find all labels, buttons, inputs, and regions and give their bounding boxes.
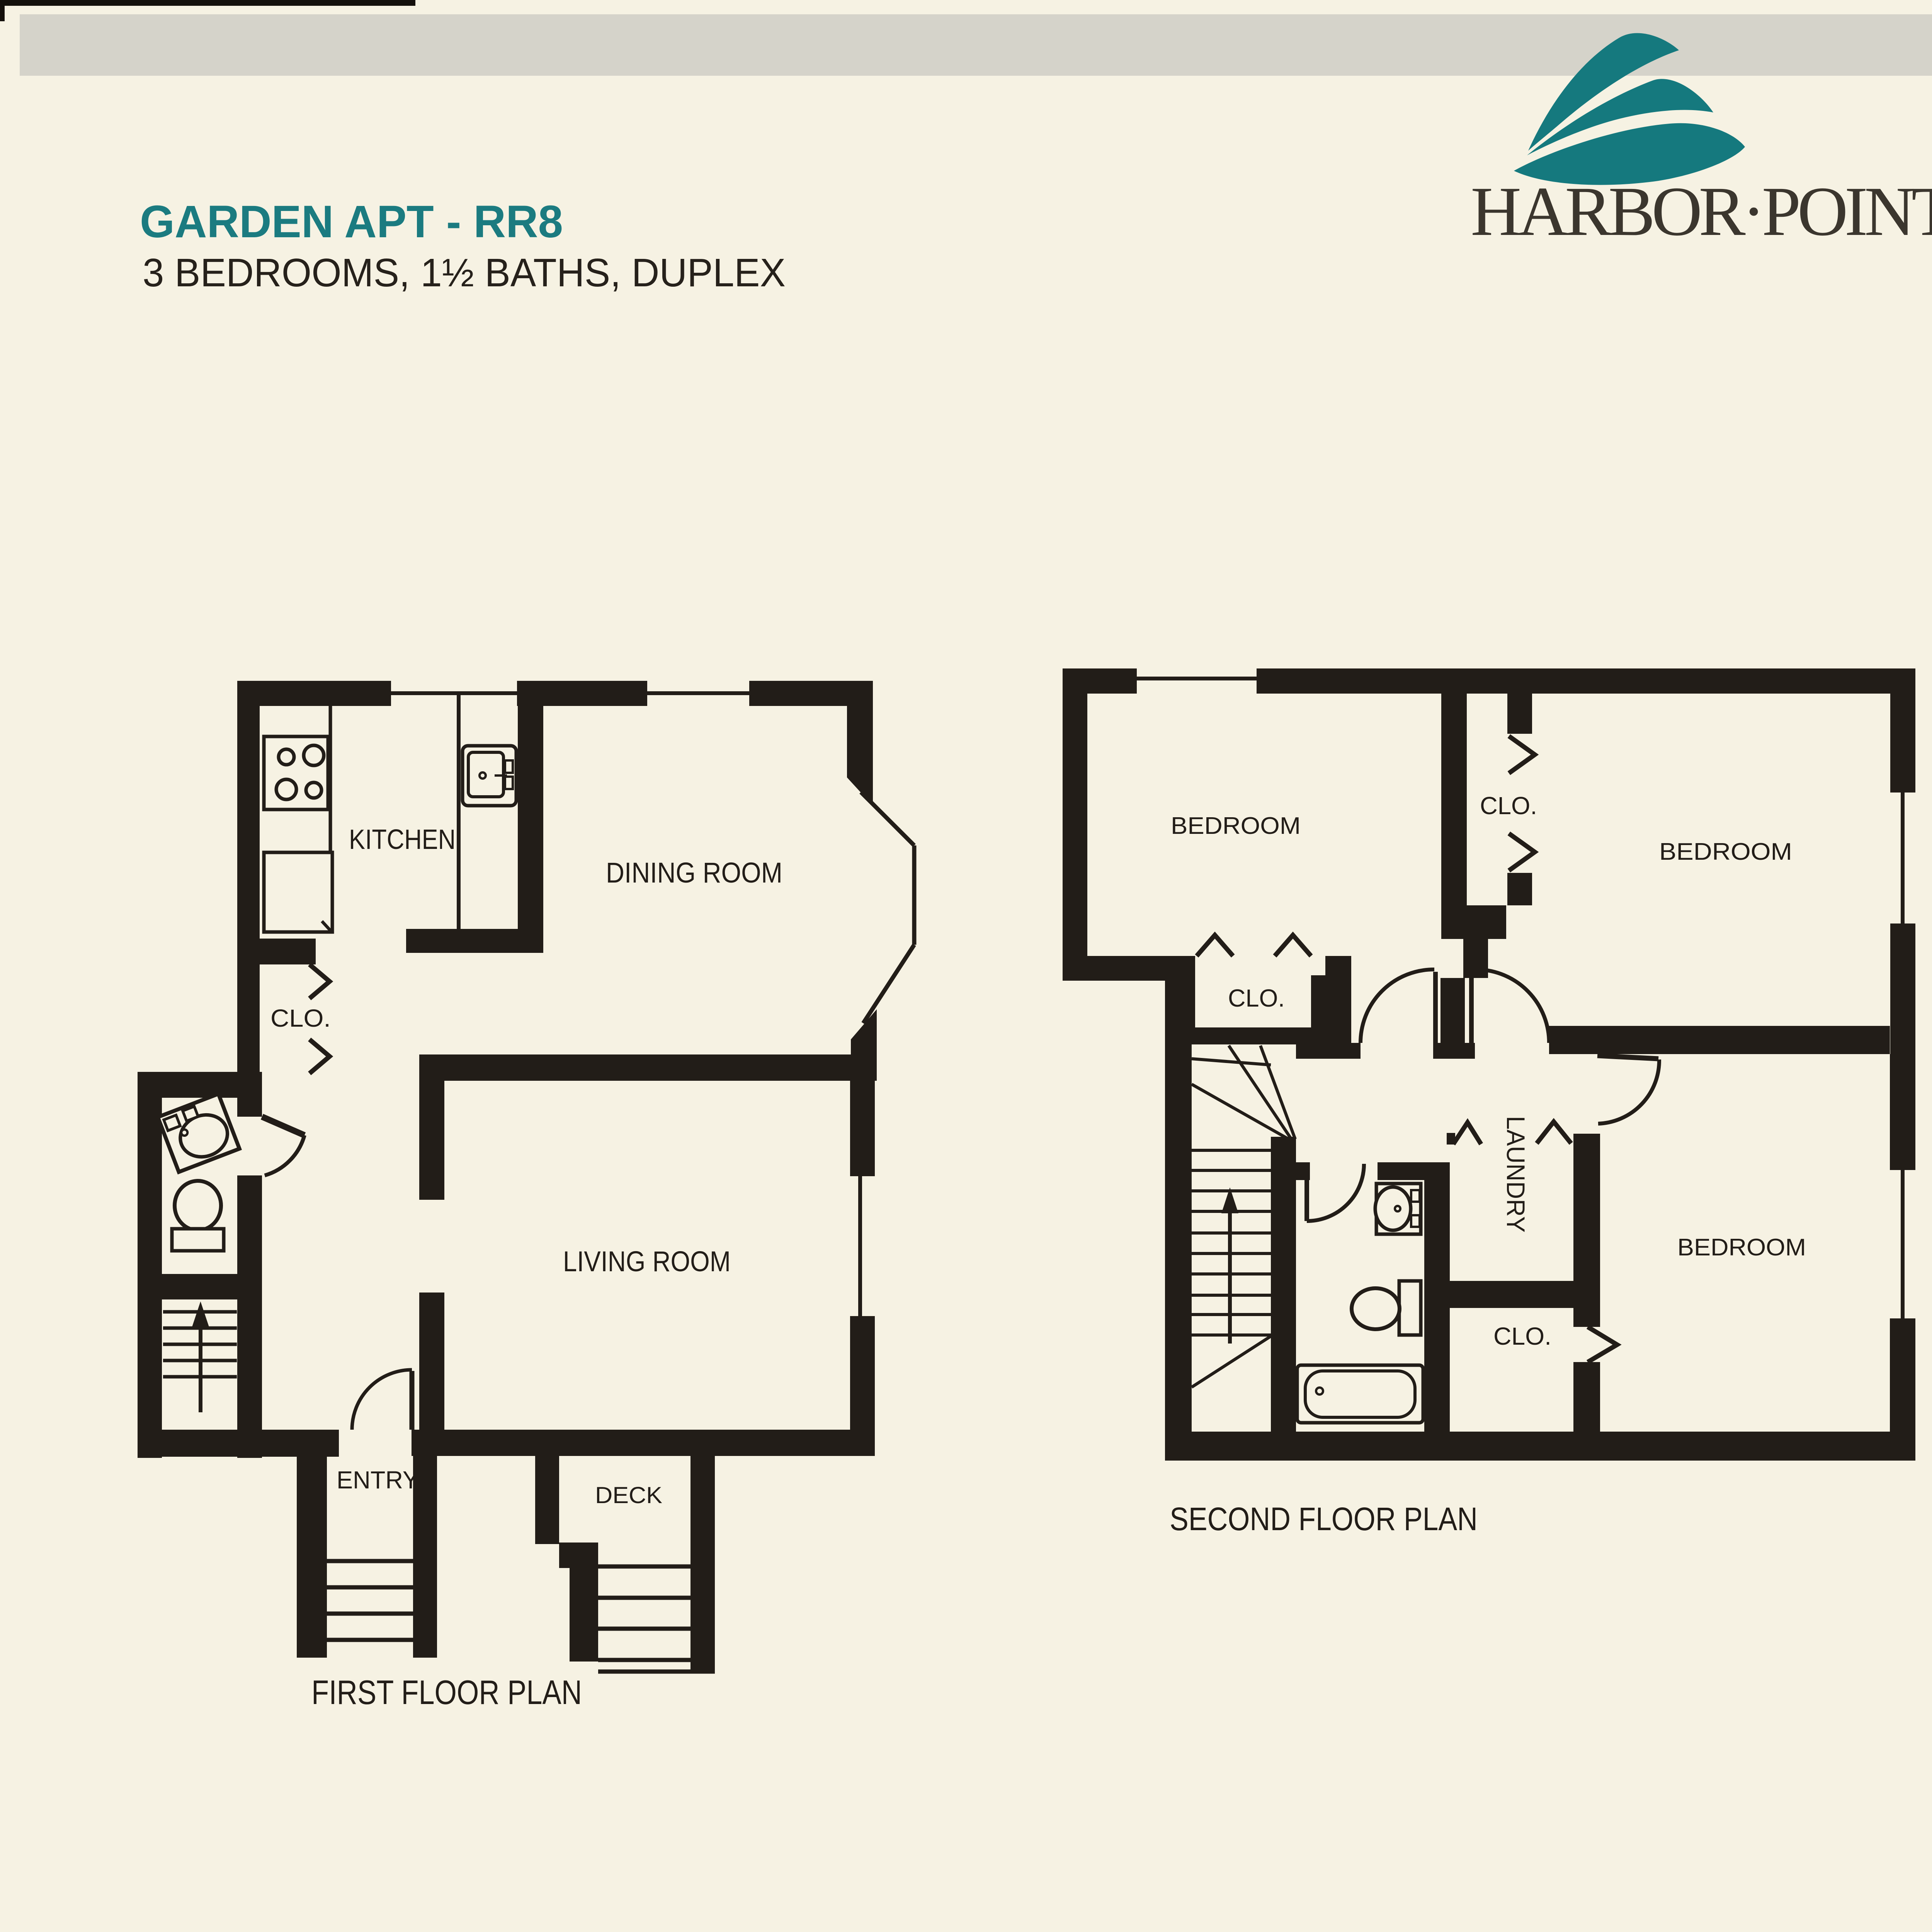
svg-text:GARDEN APT - RR8: GARDEN APT - RR8 bbox=[140, 196, 563, 247]
svg-text:DECK: DECK bbox=[595, 1482, 662, 1508]
svg-text:HARBOR·POINT: HARBOR·POINT bbox=[1471, 173, 1932, 250]
svg-text:SECOND FLOOR PLAN: SECOND FLOOR PLAN bbox=[1170, 1501, 1478, 1537]
svg-text:CLO.: CLO. bbox=[1493, 1322, 1551, 1350]
svg-text:CLO.: CLO. bbox=[270, 1004, 331, 1032]
svg-text:DINING ROOM: DINING ROOM bbox=[606, 857, 782, 889]
svg-text:BEDROOM: BEDROOM bbox=[1659, 838, 1792, 865]
svg-text:CLO.: CLO. bbox=[1228, 984, 1285, 1012]
svg-text:BEDROOM: BEDROOM bbox=[1171, 813, 1301, 839]
svg-text:FIRST FLOOR PLAN: FIRST FLOOR PLAN bbox=[311, 1673, 582, 1711]
svg-text:ENTRY: ENTRY bbox=[337, 1466, 419, 1494]
svg-text:BEDROOM: BEDROOM bbox=[1677, 1234, 1806, 1261]
svg-text:LIVING ROOM: LIVING ROOM bbox=[563, 1245, 731, 1277]
svg-text:LAUNDRY: LAUNDRY bbox=[1502, 1116, 1530, 1233]
svg-text:KITCHEN: KITCHEN bbox=[349, 824, 456, 855]
svg-text:CLO.: CLO. bbox=[1480, 792, 1537, 820]
svg-text:3 BEDROOMS, 1½ BATHS, DUPLEX: 3 BEDROOMS, 1½ BATHS, DUPLEX bbox=[143, 250, 786, 295]
